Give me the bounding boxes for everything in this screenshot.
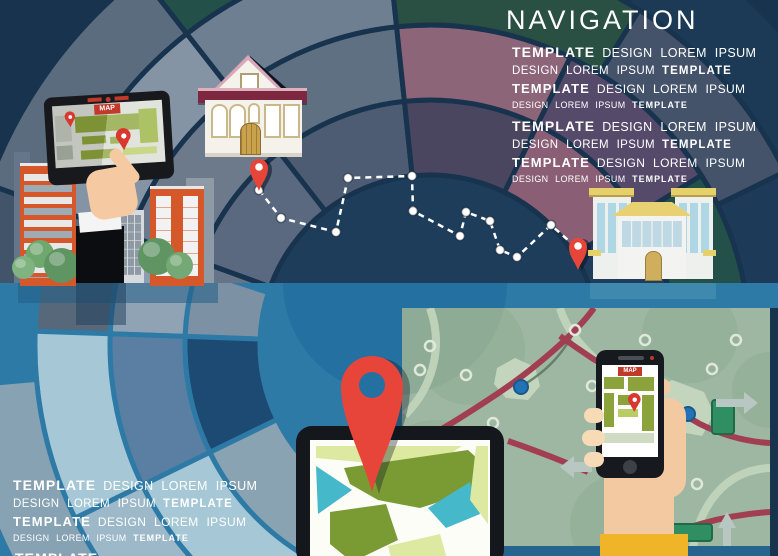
lorem-text: DESIGN LOREM IPSUM <box>602 46 756 60</box>
text-block-right-1: TEMPLATEDESIGN LOREM IPSUM DESIGN LOREM … <box>512 45 756 111</box>
phone-screen: MAP <box>602 365 658 457</box>
template-label: TEMPLATE <box>512 44 595 60</box>
lorem-text: DESIGN LOREM IPSUM <box>98 515 247 529</box>
template-label: TEMPLATE <box>163 498 233 510</box>
navigation-infographic: MAP <box>0 0 778 556</box>
phone-camera-dot <box>650 356 654 360</box>
template-label: TEMPLATE <box>13 514 91 529</box>
lorem-text: DESIGN LOREM IPSUM <box>103 479 257 493</box>
tablet-screen: MAP <box>52 100 166 169</box>
awning <box>588 250 601 256</box>
gps-map-graphic <box>310 440 490 556</box>
tree-illustration <box>166 252 193 279</box>
suit-reflection <box>76 283 126 325</box>
house-window <box>211 104 228 138</box>
right-edge-strip <box>770 308 778 556</box>
fingertip <box>582 430 605 446</box>
phone-map-text: MAP <box>623 368 636 374</box>
map-pin-icon <box>115 128 131 151</box>
template-label: TEMPLATE <box>662 139 732 151</box>
template-label: TEMPLATE <box>632 174 688 185</box>
house-door <box>240 123 261 155</box>
map-block <box>642 395 654 431</box>
tablet-camera-bar <box>88 97 102 102</box>
template-label: TEMPLATE <box>13 477 96 493</box>
map-block <box>604 377 624 389</box>
tree-illustration <box>44 248 79 283</box>
tree-illustration <box>12 256 35 279</box>
map-pin-icon <box>64 111 75 127</box>
house-window <box>264 104 281 138</box>
right-building-reflection <box>590 283 716 299</box>
tower-roof <box>589 188 634 197</box>
text-block-cutoff: TEMPLATE <box>8 551 105 556</box>
map-block <box>604 433 654 443</box>
template-label: TEMPLATE <box>632 100 688 111</box>
template-label: TEMPLATE <box>15 550 98 556</box>
map-block <box>628 377 654 391</box>
lorem-text: DESIGN LOREM IPSUM <box>512 174 626 185</box>
lorem-text: DESIGN LOREM IPSUM <box>597 82 746 96</box>
phone-home-button <box>623 460 637 474</box>
tablet-camera-dot <box>105 96 110 101</box>
phone-speaker <box>618 356 644 360</box>
map-block <box>604 393 614 427</box>
tablet-camera-bar <box>114 96 128 101</box>
house-window <box>283 104 300 138</box>
fingertip <box>584 452 604 467</box>
lorem-text: DESIGN LOREM IPSUM <box>512 139 655 151</box>
awning <box>703 250 716 256</box>
suit-arm <box>76 226 124 283</box>
template-label: TEMPLATE <box>512 81 590 96</box>
text-block-right-2: TEMPLATEDESIGN LOREM IPSUM DESIGN LOREM … <box>512 119 756 185</box>
template-label: TEMPLATE <box>662 65 732 77</box>
smartphone-device: MAP <box>596 350 664 478</box>
tower-roof <box>671 188 716 197</box>
template-label: TEMPLATE <box>133 533 189 544</box>
lorem-text: DESIGN LOREM IPSUM <box>597 156 746 170</box>
house-window <box>248 103 260 124</box>
phone-map-label: MAP <box>618 367 642 376</box>
white-building-windows <box>121 215 141 275</box>
fingertip <box>584 408 604 423</box>
gps-screen <box>310 440 490 556</box>
center-door <box>645 251 662 281</box>
center-windows <box>622 221 682 249</box>
sleeve-cuff <box>600 534 688 556</box>
arm <box>604 470 674 540</box>
template-label: TEMPLATE <box>512 155 590 170</box>
map-pin-icon <box>628 393 641 412</box>
template-label: TEMPLATE <box>512 118 595 134</box>
lorem-text: DESIGN LOREM IPSUM <box>512 65 655 77</box>
lorem-text: DESIGN LOREM IPSUM <box>13 533 127 544</box>
page-title: NAVIGATION <box>506 5 699 36</box>
lorem-text: DESIGN LOREM IPSUM <box>602 120 756 134</box>
lorem-text: DESIGN LOREM IPSUM <box>13 498 156 510</box>
tablet-map-label: MAP <box>94 103 121 115</box>
text-block-bottom-left: TEMPLATEDESIGN LOREM IPSUM DESIGN LOREM … <box>13 478 257 544</box>
tablet-map-text: MAP <box>99 105 115 113</box>
lorem-text: DESIGN LOREM IPSUM <box>512 100 626 111</box>
